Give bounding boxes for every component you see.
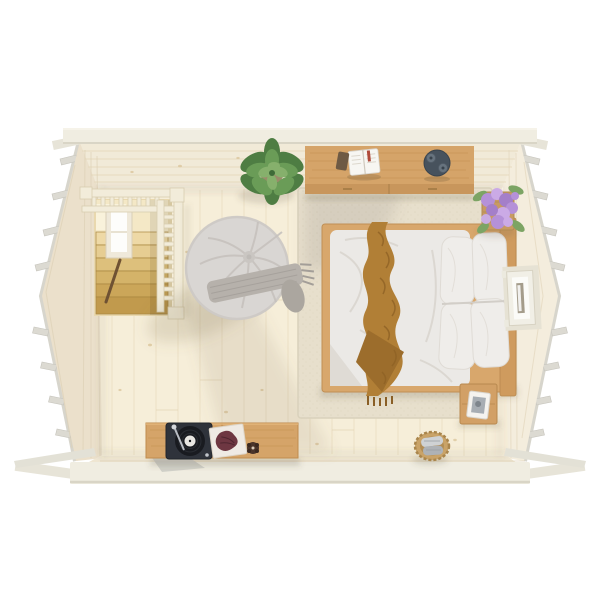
railing-right-inner-rail [157,200,164,312]
bed [320,218,518,406]
open-book [348,148,380,175]
storage-basket [412,432,449,465]
pillow-top-left [440,236,476,305]
drawer-handle-right [428,188,437,190]
render-canvas: Top-down 3D render of a log cabin bedroo… [0,0,600,600]
drawer-handle-left [343,188,352,190]
wall-window [501,265,541,331]
sideboard-shadow [305,194,474,200]
railing-post-corner [170,188,184,202]
turntable-knob [205,453,209,457]
serving-tray [424,150,450,182]
pillow-bottom-right [470,298,510,368]
railing-post-left [80,187,92,199]
cabin-top-view: Top-down 3D render of a log cabin bedroo… [0,0,600,600]
towel-grey [423,445,444,455]
railing-top-rail [82,189,182,197]
sideboard [305,146,474,200]
media-console [146,423,300,472]
record-sleeve [209,424,247,458]
nightstand [458,384,500,428]
stairwell-window [106,206,132,258]
turntable [166,423,212,459]
candle [247,442,259,454]
photo-frame [466,391,490,419]
